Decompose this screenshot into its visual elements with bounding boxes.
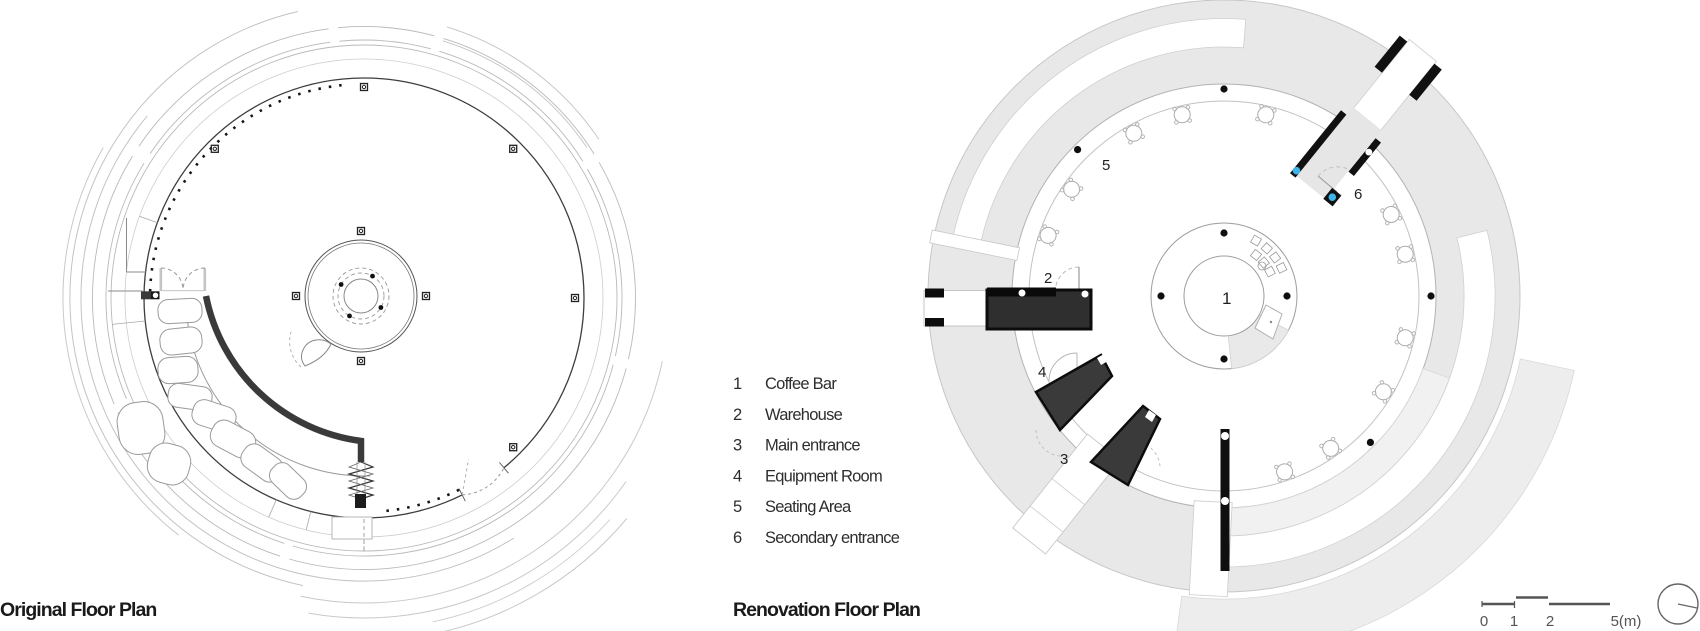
svg-text:Seating Area: Seating Area [765, 498, 852, 516]
svg-text:1: 1 [1510, 613, 1518, 630]
svg-text:6: 6 [1354, 186, 1362, 203]
svg-text:2: 2 [733, 406, 742, 424]
svg-text:Secondary entrance: Secondary entrance [765, 529, 900, 547]
svg-text:1: 1 [1222, 289, 1231, 308]
svg-text:4: 4 [733, 467, 742, 485]
svg-text:3: 3 [1060, 451, 1068, 468]
svg-text:5(m): 5(m) [1611, 613, 1642, 630]
svg-text:2: 2 [1546, 613, 1554, 630]
svg-text:Coffee Bar: Coffee Bar [765, 375, 837, 393]
svg-text:Original Floor Plan: Original Floor Plan [0, 599, 156, 621]
svg-text:Main entrance: Main entrance [765, 437, 860, 455]
svg-text:5: 5 [1102, 157, 1110, 174]
svg-text:1: 1 [733, 375, 742, 393]
svg-text:3: 3 [733, 437, 742, 455]
svg-text:2: 2 [1044, 270, 1052, 287]
svg-text:Renovation Floor Plan: Renovation Floor Plan [733, 599, 920, 621]
svg-text:Equipment Room: Equipment Room [765, 467, 882, 485]
svg-text:4: 4 [1038, 364, 1046, 381]
svg-text:0: 0 [1480, 613, 1488, 630]
svg-text:5: 5 [733, 498, 742, 516]
svg-text:Warehouse: Warehouse [765, 406, 843, 424]
svg-text:6: 6 [733, 529, 742, 547]
